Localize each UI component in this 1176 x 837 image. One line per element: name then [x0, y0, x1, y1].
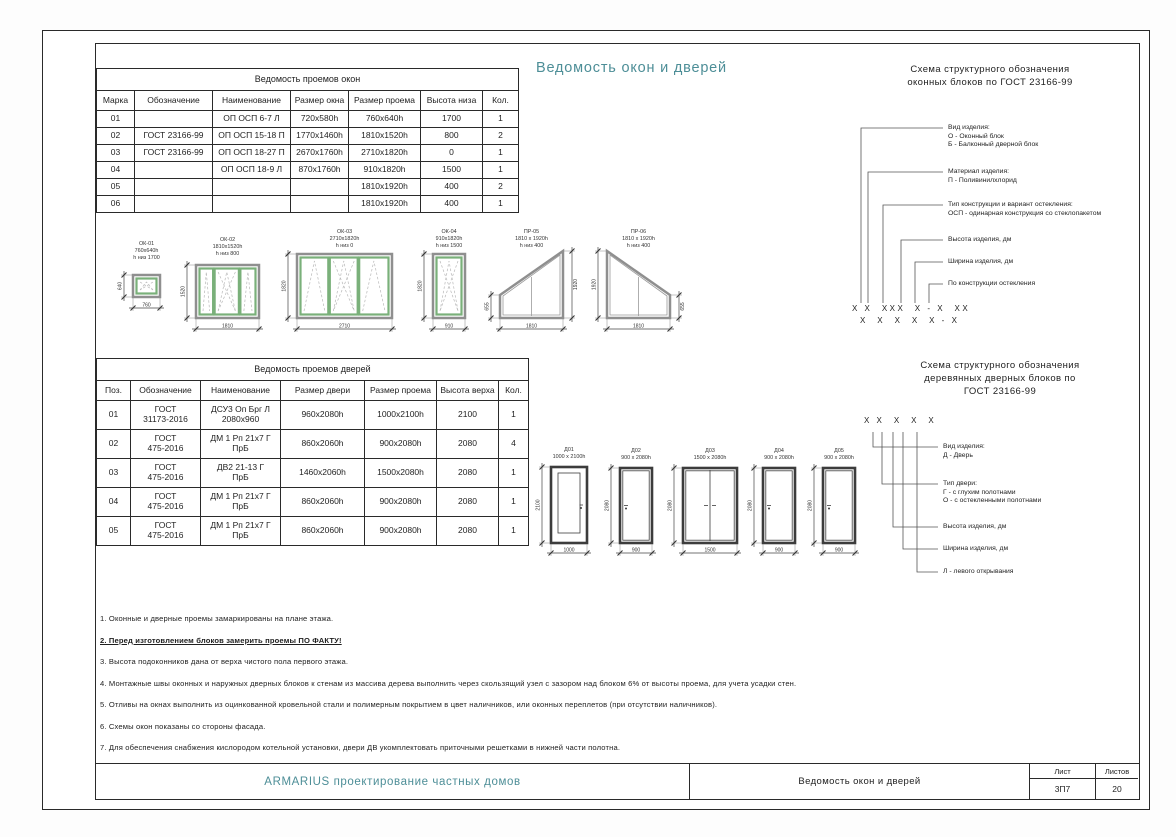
table-cell: 1810х1920h: [349, 196, 421, 213]
table-cell: 1: [483, 196, 519, 213]
door-drawing: Д011000 х 2100h10002100: [536, 447, 592, 556]
table-cell: ГОСТ 23166-99: [135, 145, 213, 162]
dimension-label: 1520: [181, 286, 187, 297]
column-header: Наименование: [213, 91, 291, 111]
table-cell: 03: [97, 145, 135, 162]
dimension-label: 1820: [282, 280, 288, 291]
table-cell: 1500: [421, 162, 483, 179]
table-row: 061810х1920h4001: [97, 196, 519, 213]
door-drawing: Д031500 х 2080h15002080: [668, 448, 742, 556]
schema-label: ОСП - одинарная конструкция со стеклопак…: [948, 210, 1101, 219]
table-row: 03ГОСТ 475-2016ДВ2 21-13 Г ПрБ1460х2060h…: [97, 459, 529, 488]
window-mark: ОК-04: [441, 229, 456, 235]
dimension-label: 1920: [573, 279, 579, 290]
window-mark: ПР-06: [631, 229, 646, 235]
sheets-total-column: Листов 20: [1096, 764, 1138, 799]
table-cell: [135, 179, 213, 196]
table-cell: 1000х2100h: [365, 401, 437, 430]
note-item: 3. Высота подоконников дана от верха чис…: [100, 657, 1112, 666]
table-cell: 1: [499, 401, 529, 430]
table-row: 02ГОСТ 23166-99ОП ОСП 15-18 П1770х1460h1…: [97, 128, 519, 145]
window-sill-note: h низ 0: [336, 243, 353, 249]
window-sill-note: h низ 400: [627, 243, 650, 249]
window-drawing: ОК-021810х1520hh низ 80018101520: [181, 237, 264, 332]
designation-formula: Х Х ХХХ Х - Х ХХ: [852, 304, 970, 313]
table-cell: 05: [97, 517, 131, 546]
table-cell: 2: [483, 179, 519, 196]
table-cell: ДМ 1 Рп 21х7 Г ПрБ: [201, 517, 281, 546]
door-size: 1500 х 2080h: [694, 455, 727, 461]
dimension-label: 1500: [704, 548, 715, 554]
table-cell: 05: [97, 179, 135, 196]
window-sill-note: h низ 400: [520, 243, 543, 249]
window-mark: ОК-02: [220, 237, 235, 243]
dimension-label: 655: [485, 302, 491, 311]
dimension-label: 655: [680, 302, 686, 311]
table-cell: 910х1820h: [349, 162, 421, 179]
dimension-label: 1000: [563, 548, 574, 554]
table-row: 05ГОСТ 475-2016ДМ 1 Рп 21х7 Г ПрБ860х206…: [97, 517, 529, 546]
dimension-label: 640: [118, 282, 124, 291]
schema-label: Ширина изделия, дм: [943, 545, 1008, 554]
table-cell: [135, 162, 213, 179]
table-cell: ДСУ3 Оп Брг Л 2080х960: [201, 401, 281, 430]
table-cell: ДМ 1 Рп 21х7 Г ПрБ: [201, 430, 281, 459]
doors-schedule-table: Ведомость проемов дверейПоз.ОбозначениеН…: [96, 358, 529, 546]
dimension-label: 1920: [592, 279, 598, 290]
table-cell: 1: [499, 488, 529, 517]
table-row: 03ГОСТ 23166-99ОП ОСП 18-27 П2670х1760h2…: [97, 145, 519, 162]
company-name: ARMARIUS проектирование частных домов: [96, 764, 690, 799]
table-cell: 1: [483, 111, 519, 128]
table-cell: 720х580h: [291, 111, 349, 128]
dimension-label: 2710: [339, 324, 350, 330]
window-size: 910х1820h: [436, 236, 463, 242]
dimension-label: 760: [142, 303, 151, 309]
window-sill-note: h низ 800: [216, 251, 239, 257]
note-item: 5. Отливы на окнах выполнить из оцинкова…: [100, 700, 1112, 709]
table-row: 02ГОСТ 475-2016ДМ 1 Рп 21х7 Г ПрБ860х206…: [97, 430, 529, 459]
note-item: 1. Оконные и дверные проемы замаркирован…: [100, 614, 1112, 623]
table-cell: 860х2060h: [281, 517, 365, 546]
schema-label: Высота изделия, дм: [948, 236, 1011, 245]
schema-label: П - Поливинилхлорид: [948, 177, 1017, 186]
table-cell: [135, 196, 213, 213]
door-drawing: Д02900 х 2080h9002080: [605, 448, 657, 556]
table-cell: ОП ОСП 6-7 Л: [213, 111, 291, 128]
table-row: 04ГОСТ 475-2016ДМ 1 Рп 21х7 Г ПрБ860х206…: [97, 488, 529, 517]
door-mark: Д03: [705, 448, 715, 454]
table-cell: [213, 196, 291, 213]
door-mark: Д04: [774, 448, 784, 454]
dimension-label: 2080: [668, 500, 674, 511]
column-header: Размер двери: [281, 381, 365, 401]
column-header: Высота верха: [437, 381, 499, 401]
schema-title: Схема структурного обозначения: [830, 64, 1150, 75]
dimension-label: 2080: [808, 500, 814, 511]
sheet-label: Лист: [1030, 764, 1095, 779]
table-cell: ДВ2 21-13 Г ПрБ: [201, 459, 281, 488]
note-item: 2. Перед изготовлением блоков замерить п…: [100, 636, 1112, 645]
schema-label: Тип конструкции и вариант остекления:: [948, 201, 1073, 210]
window-size: 1810 х 1920h: [515, 236, 548, 242]
table-cell: 1: [499, 459, 529, 488]
schema-label: Материал изделия:: [948, 168, 1009, 177]
table-row: 04ОП ОСП 18-9 Л870х1760h910х1820h15001: [97, 162, 519, 179]
table-cell: 04: [97, 488, 131, 517]
note-item: 7. Для обеспечения снабжения кислородом …: [100, 743, 1112, 752]
table-cell: 04: [97, 162, 135, 179]
table-cell: 2080: [437, 517, 499, 546]
door-elevation-drawings: Д011000 х 2100h10002100Д02900 х 2080h900…: [528, 420, 888, 572]
schema-label: Тип двери:: [943, 480, 977, 489]
window-size: 2710х1820h: [330, 236, 360, 242]
table-cell: ОП ОСП 15-18 П: [213, 128, 291, 145]
window-drawing: ПР-051810 х 1920hh низ 40018106551920: [485, 229, 580, 332]
table-cell: 1: [483, 145, 519, 162]
schema-title: Схема структурного обозначения: [840, 360, 1160, 371]
designation-formula: Х Х Х Х Х - Х: [860, 316, 959, 325]
dimension-label: 1810: [633, 324, 644, 330]
schema-label: Б - Балконный дверной блок: [948, 141, 1038, 150]
table-title: Ведомость проемов окон: [97, 69, 519, 91]
table-cell: [291, 196, 349, 213]
column-header: Кол.: [499, 381, 529, 401]
window-size: 1810 х 1920h: [622, 236, 655, 242]
designation-formula: Х Х Х Х Х: [864, 416, 936, 425]
table-cell: 400: [421, 196, 483, 213]
schema-label: Высота изделия, дм: [943, 523, 1006, 532]
table-cell: ОП ОСП 18-9 Л: [213, 162, 291, 179]
dimension-label: 900: [775, 548, 784, 554]
table-cell: 1810х1920h: [349, 179, 421, 196]
door-mark: Д02: [631, 448, 641, 454]
table-cell: 02: [97, 430, 131, 459]
table-cell: 870х1760h: [291, 162, 349, 179]
table-cell: 01: [97, 401, 131, 430]
door-designation-schema: Схема структурного обозначениядеревянных…: [840, 358, 1160, 588]
table-cell: 06: [97, 196, 135, 213]
table-cell: [135, 111, 213, 128]
schema-label: О - с остекленными полотнами: [943, 497, 1041, 506]
dimension-label: 2100: [536, 499, 542, 510]
door-size: 900 х 2080h: [764, 455, 794, 461]
table-cell: 960х2080h: [281, 401, 365, 430]
window-size: 760х640h: [135, 248, 159, 254]
table-cell: ГОСТ 475-2016: [131, 488, 201, 517]
schema-title: деревянных дверных блоков по: [840, 373, 1160, 384]
table-cell: [213, 179, 291, 196]
table-cell: 400: [421, 179, 483, 196]
window-mark: ПР-05: [524, 229, 539, 235]
table-cell: 2080: [437, 430, 499, 459]
table-cell: 900х2080h: [365, 488, 437, 517]
table-cell: 800: [421, 128, 483, 145]
schema-label: Вид изделия:: [943, 443, 985, 452]
schema-label: Ширина изделия, дм: [948, 258, 1013, 267]
note-item: 6. Схемы окон показаны со стороны фасада…: [100, 722, 1112, 731]
schema-label: Д - Дверь: [943, 452, 973, 461]
table-cell: 1460х2060h: [281, 459, 365, 488]
table-cell: 2080: [437, 488, 499, 517]
table-row: 01ГОСТ 31173-2016ДСУ3 Оп Брг Л 2080х9609…: [97, 401, 529, 430]
dimension-label: 910: [445, 324, 454, 330]
table-cell: 2670х1760h: [291, 145, 349, 162]
window-sill-note: h низ 1500: [436, 243, 462, 249]
table-cell: ДМ 1 Рп 21х7 Г ПрБ: [201, 488, 281, 517]
table-row: 051810х1920h4002: [97, 179, 519, 196]
table-cell: ОП ОСП 18-27 П: [213, 145, 291, 162]
document-title: Ведомость окон и дверей: [690, 764, 1030, 799]
table-cell: 2100: [437, 401, 499, 430]
title-block: ARMARIUS проектирование частных домов Ве…: [95, 763, 1140, 800]
column-header: Обозначение: [135, 91, 213, 111]
dimension-label: 1810: [222, 324, 233, 330]
table-cell: 02: [97, 128, 135, 145]
dimension-label: 2080: [748, 500, 754, 511]
schema-label: Л - левого открывания: [943, 568, 1014, 577]
window-mark: ОК-03: [337, 229, 352, 235]
dimension-label: 1810: [526, 324, 537, 330]
schema-label: По конструкции остекления: [948, 280, 1035, 289]
table-cell: 2080: [437, 459, 499, 488]
window-mark: ОК-01: [139, 241, 154, 247]
table-cell: 1: [499, 517, 529, 546]
column-header: Поз.: [97, 381, 131, 401]
sheets-total: 20: [1096, 779, 1138, 798]
table-cell: 760х640h: [349, 111, 421, 128]
table-cell: 1770х1460h: [291, 128, 349, 145]
column-header: Обозначение: [131, 381, 201, 401]
window-elevation-drawings: ОК-01760х640hh низ 1700760640ОК-021810х1…: [95, 222, 815, 362]
schema-title: оконных блоков по ГОСТ 23166-99: [830, 77, 1150, 88]
column-header: Наименование: [201, 381, 281, 401]
table-cell: 01: [97, 111, 135, 128]
table-cell: ГОСТ 23166-99: [135, 128, 213, 145]
schema-label: Вид изделия:: [948, 124, 990, 133]
window-drawing: ОК-032710х1820hh низ 027101820: [282, 229, 397, 332]
door-drawing: Д04900 х 2080h9002080: [748, 448, 800, 556]
dimension-label: 900: [632, 548, 641, 554]
table-cell: 1500х2080h: [365, 459, 437, 488]
table-cell: 860х2060h: [281, 430, 365, 459]
schema-title: ГОСТ 23166-99: [840, 386, 1160, 397]
sheets-label: Листов: [1096, 764, 1138, 779]
sheet-number-column: Лист 3П7: [1030, 764, 1096, 799]
table-cell: 0: [421, 145, 483, 162]
table-cell: 900х2080h: [365, 517, 437, 546]
table-cell: 1700: [421, 111, 483, 128]
door-mark: Д01: [564, 447, 574, 453]
window-designation-schema: Схема структурного обозначенияоконных бл…: [830, 60, 1150, 338]
dimension-label: 2080: [605, 500, 611, 511]
table-cell: ГОСТ 475-2016: [131, 459, 201, 488]
table-cell: ГОСТ 475-2016: [131, 517, 201, 546]
column-header: Марка: [97, 91, 135, 111]
window-drawing: ОК-04910х1820hh низ 15009101820: [418, 229, 470, 332]
column-header: Размер окна: [291, 91, 349, 111]
door-size: 900 х 2080h: [621, 455, 651, 461]
notes-list: 1. Оконные и дверные проемы замаркирован…: [100, 614, 1112, 765]
table-cell: 2: [483, 128, 519, 145]
windows-schedule-table: Ведомость проемов оконМаркаОбозначениеНа…: [96, 68, 519, 213]
column-header: Размер проема: [365, 381, 437, 401]
table-cell: 1810х1520h: [349, 128, 421, 145]
sheet-number: 3П7: [1030, 779, 1095, 798]
table-row: 01ОП ОСП 6-7 Л720х580h760х640h17001: [97, 111, 519, 128]
table-cell: 03: [97, 459, 131, 488]
door-size: 1000 х 2100h: [553, 454, 586, 460]
window-sill-note: h низ 1700: [133, 255, 159, 261]
column-header: Высота низа: [421, 91, 483, 111]
window-size: 1810х1520h: [213, 244, 243, 250]
table-cell: ГОСТ 31173-2016: [131, 401, 201, 430]
table-cell: 900х2080h: [365, 430, 437, 459]
note-item: 4. Монтажные швы оконных и наружных двер…: [100, 679, 1112, 688]
table-cell: 860х2060h: [281, 488, 365, 517]
column-header: Размер проема: [349, 91, 421, 111]
table-cell: 4: [499, 430, 529, 459]
window-drawing: ПР-061810 х 1920hh низ 40018101920655: [592, 229, 687, 332]
column-header: Кол.: [483, 91, 519, 111]
sheet-title: Ведомость окон и дверей: [536, 60, 727, 76]
table-cell: 2710х1820h: [349, 145, 421, 162]
table-cell: [291, 179, 349, 196]
table-cell: 1: [483, 162, 519, 179]
schema-label: Г - с глухим полотнами: [943, 489, 1016, 498]
schema-label: О - Оконный блок: [948, 133, 1004, 142]
window-drawing: ОК-01760х640hh низ 1700760640: [118, 241, 165, 311]
table-cell: ГОСТ 475-2016: [131, 430, 201, 459]
dimension-label: 1820: [418, 280, 424, 291]
